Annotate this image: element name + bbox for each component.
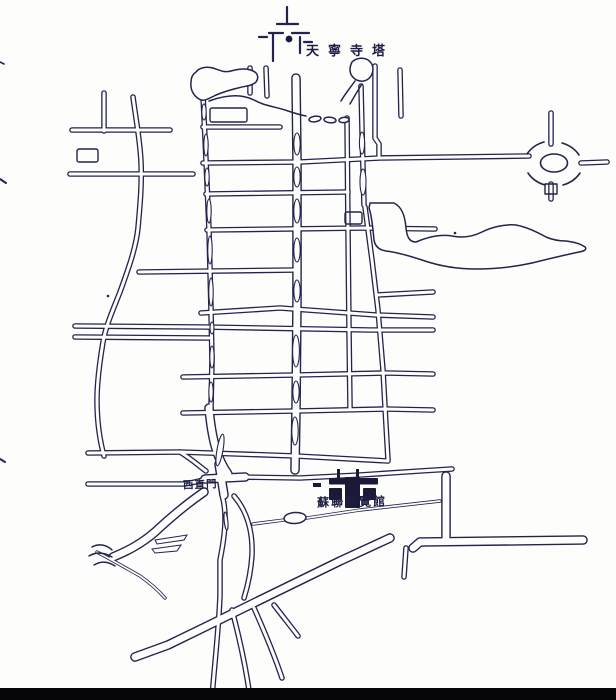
exhibition-hall-label: 蘇聯展覽館 — [317, 492, 387, 510]
pagoda-dot — [286, 36, 293, 43]
roundabout-island — [541, 154, 568, 172]
pond-small — [350, 58, 373, 81]
road-island-spindles — [152, 535, 187, 553]
map-page: 天寧寺塔 西直門 蘇聯展覽館 — [0, 0, 616, 700]
lake — [369, 203, 586, 269]
pagoda-label: 天寧寺塔 — [306, 40, 394, 59]
river — [209, 96, 306, 116]
canal-pool — [284, 512, 307, 525]
streets-fill — [70, 66, 607, 697]
pagoda-icon — [259, 7, 312, 61]
moat — [94, 562, 115, 566]
canal-casing — [97, 501, 440, 598]
moat — [92, 545, 112, 550]
map-drawing — [0, 0, 616, 700]
scan-bottom-bar — [0, 688, 616, 700]
gate-label: 西直門 — [183, 476, 218, 492]
pond-north — [191, 67, 258, 100]
